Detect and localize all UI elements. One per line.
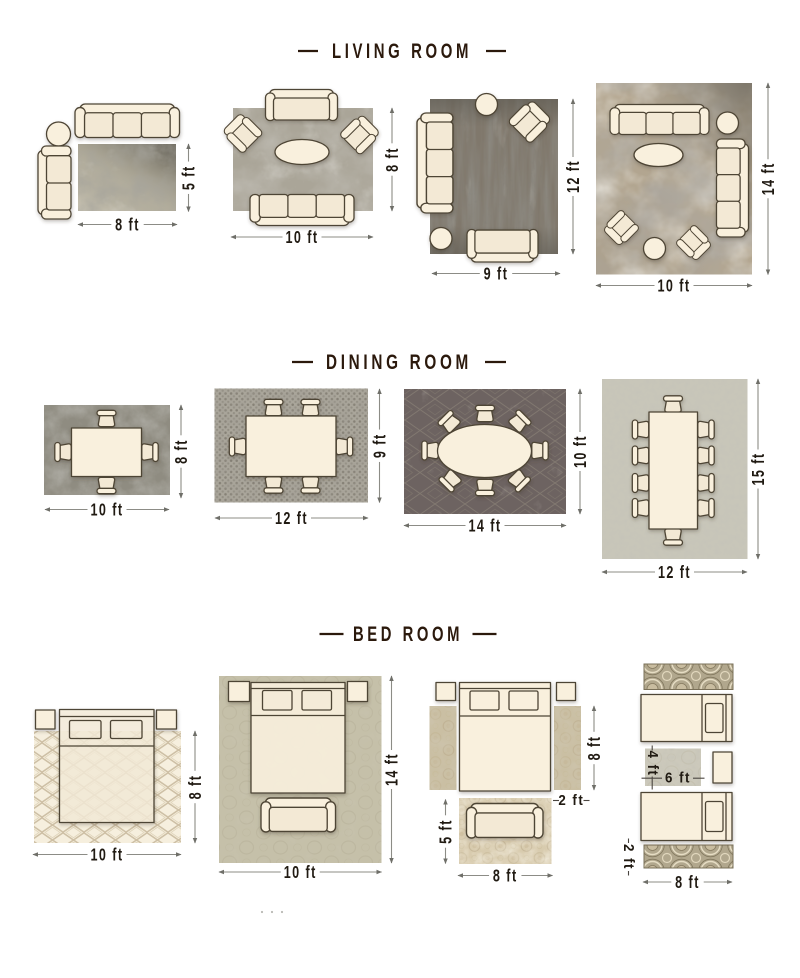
svg-text:10 ft: 10 ft	[571, 435, 591, 468]
svg-text:12 ft: 12 ft	[658, 563, 691, 583]
svg-text:5 ft: 5 ft	[180, 165, 200, 190]
svg-text:14 ft: 14 ft	[383, 753, 403, 786]
svg-text:12 ft: 12 ft	[564, 160, 584, 193]
svg-text:10 ft: 10 ft	[90, 501, 123, 521]
svg-text:10 ft: 10 ft	[285, 228, 318, 248]
svg-text:2 ft: 2 ft	[558, 792, 584, 809]
svg-text:10 ft: 10 ft	[90, 846, 123, 866]
svg-text:6 ft: 6 ft	[665, 769, 691, 786]
svg-text:8 ft: 8 ft	[585, 736, 605, 761]
svg-text:9 ft: 9 ft	[371, 433, 391, 458]
svg-text:DINING ROOM: DINING ROOM	[326, 350, 472, 374]
svg-text:9 ft: 9 ft	[484, 265, 509, 285]
svg-text:8 ft: 8 ft	[115, 216, 140, 236]
svg-text:8 ft: 8 ft	[172, 439, 192, 464]
svg-text:8 ft: 8 ft	[186, 775, 206, 800]
svg-text:BED ROOM: BED ROOM	[353, 622, 463, 646]
svg-text:12 ft: 12 ft	[275, 509, 308, 529]
svg-text:14 ft: 14 ft	[468, 517, 501, 537]
svg-text:4 ft: 4 ft	[645, 751, 662, 777]
svg-text:8 ft: 8 ft	[675, 873, 700, 893]
svg-text:2 ft: 2 ft	[621, 844, 638, 870]
svg-text:LIVING ROOM: LIVING ROOM	[332, 39, 472, 63]
svg-text:15 ft: 15 ft	[749, 452, 769, 485]
svg-text:5 ft: 5 ft	[437, 819, 457, 844]
svg-text:14 ft: 14 ft	[759, 162, 779, 195]
svg-text:8 ft: 8 ft	[383, 147, 403, 172]
svg-text:8 ft: 8 ft	[493, 867, 518, 887]
svg-text:10 ft: 10 ft	[284, 863, 317, 883]
svg-text:10 ft: 10 ft	[657, 277, 690, 297]
